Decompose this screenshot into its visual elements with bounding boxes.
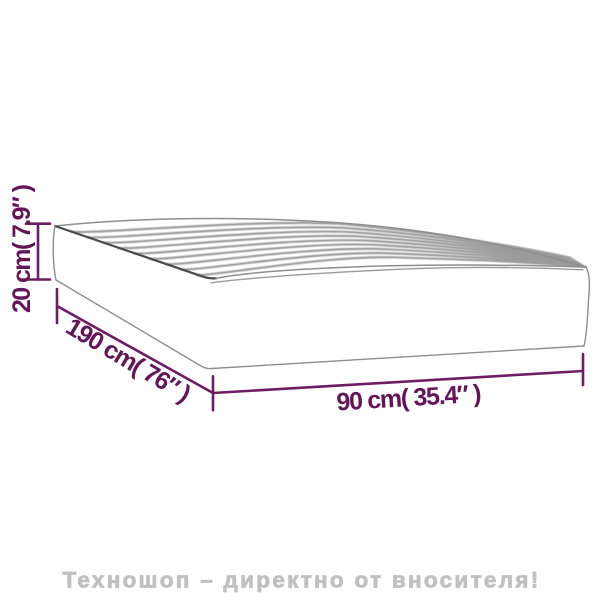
svg-text:Техношоп – директно от вносите: Техношоп – директно от вносителя! [62,568,540,593]
svg-text:20 cm( 7.9″ ): 20 cm( 7.9″ ) [8,184,36,313]
